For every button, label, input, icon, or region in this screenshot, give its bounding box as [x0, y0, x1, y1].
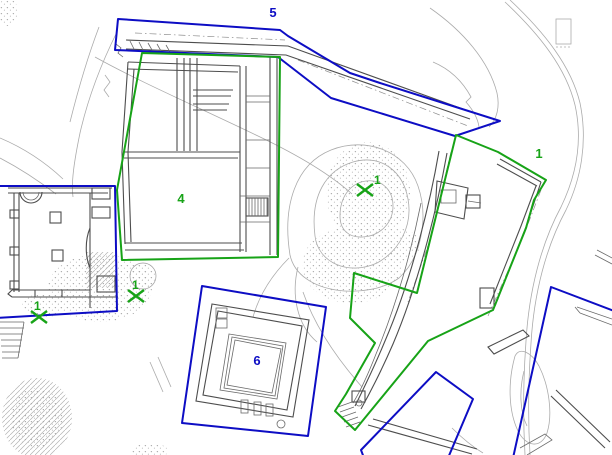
marker-1-left-label: 1 — [132, 278, 139, 292]
zone-bottom-center — [361, 372, 473, 455]
zone-4-label: 4 — [177, 191, 185, 206]
site-plan: 5416111 — [0, 0, 612, 455]
zone-1-label: 1 — [535, 146, 542, 161]
zone-6-label: 6 — [253, 353, 260, 368]
zone-5-label: 5 — [269, 5, 276, 20]
marker-1-center-label: 1 — [374, 173, 381, 187]
marker-1-far-left: 1 — [31, 299, 47, 323]
zone-overlay: 5416111 — [0, 0, 612, 455]
zone-1 — [335, 135, 546, 430]
marker-1-left: 1 — [128, 278, 144, 302]
zone-left-building — [0, 186, 117, 318]
zone-5 — [115, 19, 500, 136]
zone-right-edge — [513, 287, 612, 455]
marker-1-far-left-label: 1 — [34, 299, 41, 313]
zone-4 — [117, 53, 280, 260]
marker-1-center: 1 — [357, 173, 381, 196]
